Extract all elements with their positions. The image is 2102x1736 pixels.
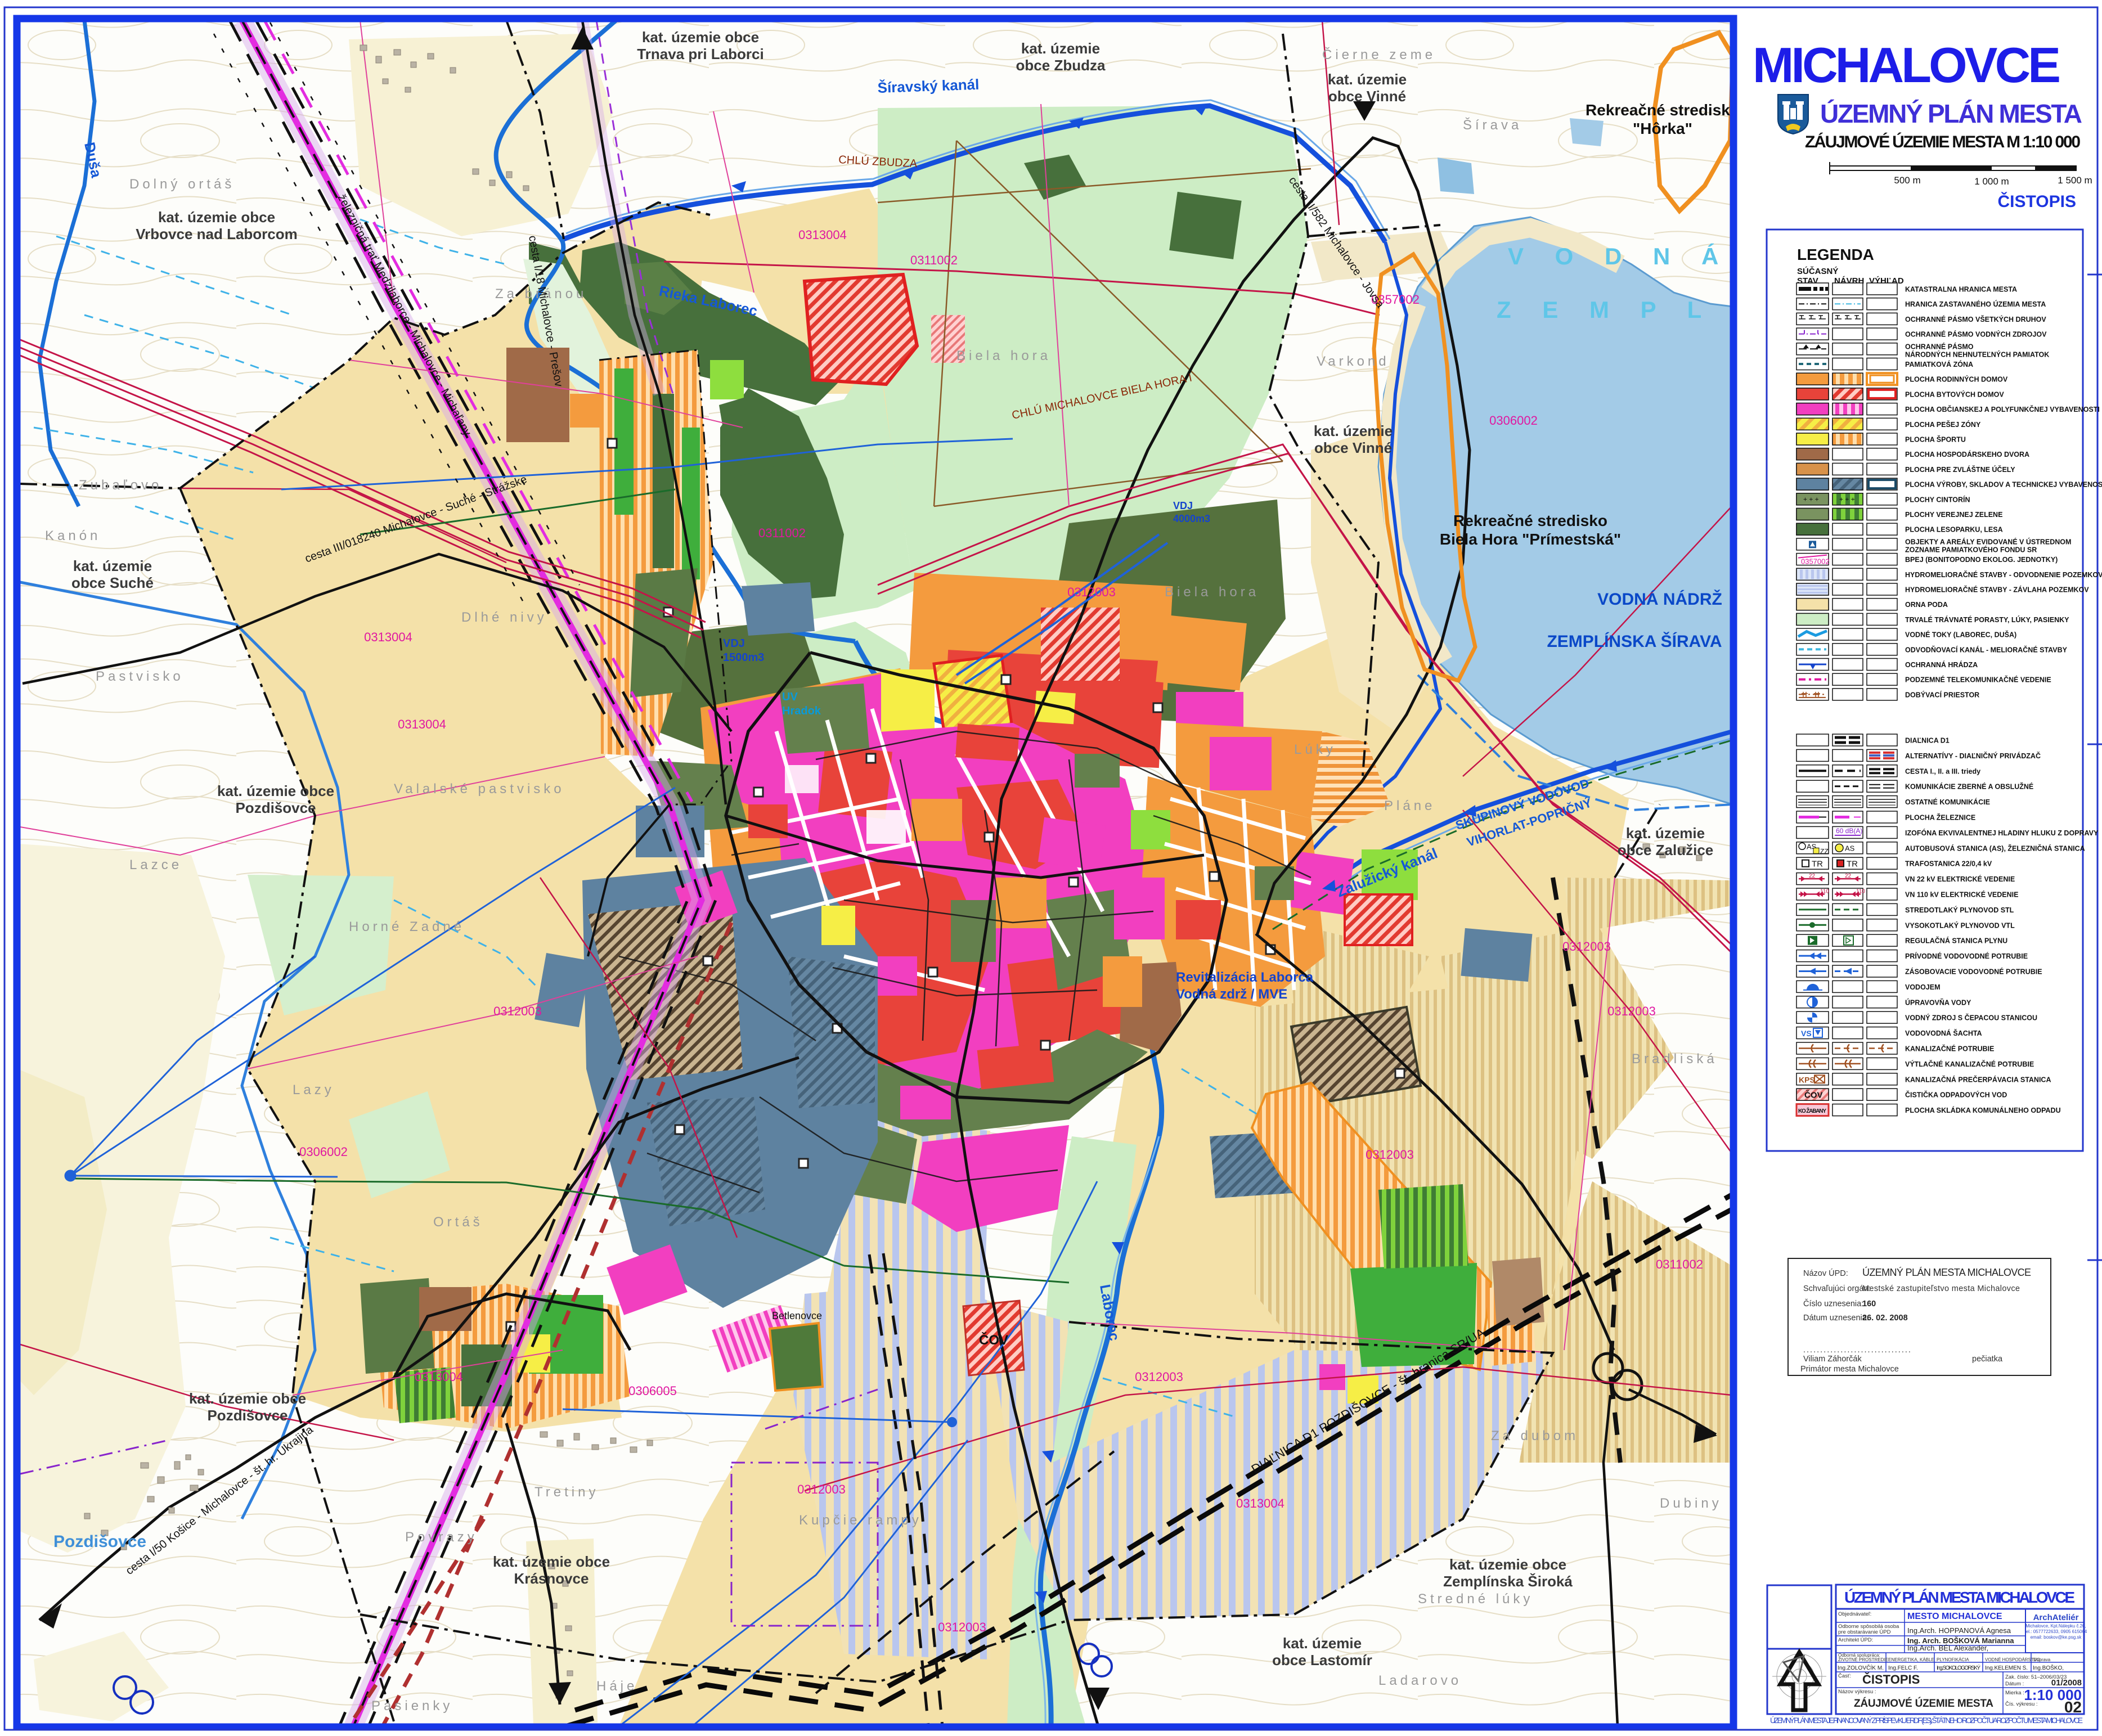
svg-text:VS: VS: [1801, 1029, 1812, 1038]
svg-text:tel.: 0577722633, 0905 615064: tel.: 0577722633, 0905 615064: [2025, 1629, 2087, 1634]
svg-text:0312003: 0312003: [1562, 939, 1611, 954]
svg-text:110: 110: [1856, 889, 1865, 895]
svg-text:Dátum uznesenia:: Dátum uznesenia:: [1803, 1314, 1869, 1323]
svg-text:Biela hora: Biela hora: [956, 348, 1051, 363]
svg-text:Šíravský kanál: Šíravský kanál: [877, 76, 980, 96]
svg-text:ÚPRAVOVŇA VODY: ÚPRAVOVŇA VODY: [1905, 998, 1971, 1006]
svg-text:0311002: 0311002: [1656, 1257, 1703, 1271]
svg-text:OCHRANNÉ PÁSMO: OCHRANNÉ PÁSMO: [1905, 342, 1974, 350]
svg-text:1500m3: 1500m3: [723, 651, 764, 664]
svg-text:KO ŽABANY: KO ŽABANY: [1798, 1107, 1826, 1114]
svg-text:Lazy: Lazy: [293, 1082, 335, 1098]
svg-text:obce Suché: obce Suché: [71, 574, 154, 591]
svg-text:Čierne zeme: Čierne zeme: [1322, 47, 1436, 62]
svg-text:VDJ: VDJ: [1173, 500, 1193, 511]
svg-text:500 m: 500 m: [1894, 175, 1920, 186]
svg-text:0313004: 0313004: [415, 1370, 463, 1384]
svg-text:VODOVODNÁ ŠACHTA: VODOVODNÁ ŠACHTA: [1905, 1029, 1982, 1037]
svg-text:ODVODŇOVACÍ KANÁL - MELIORAČN: ODVODŇOVACÍ KANÁL - MELIORAČNÉ STAVBY: [1905, 645, 2068, 654]
svg-text:kat. územie obce: kat. územie obce: [493, 1553, 610, 1570]
svg-text:Tretiny: Tretiny: [535, 1485, 599, 1500]
svg-text:kat. územie obce: kat. územie obce: [642, 29, 759, 46]
svg-text:26. 02. 2008: 26. 02. 2008: [1862, 1314, 1908, 1323]
svg-text:Kupčie rampy: Kupčie rampy: [799, 1513, 922, 1528]
svg-text:VN 22 kV ELEKTRICKÉ VEDENIE: VN 22 kV ELEKTRICKÉ VEDENIE: [1905, 875, 2015, 883]
svg-text:ČISTOPIS: ČISTOPIS: [1862, 1672, 1920, 1686]
svg-text:Časť:: Časť:: [1838, 1673, 1851, 1679]
svg-text:Dátum :: Dátum :: [2005, 1681, 2024, 1687]
svg-text:Ing.Arch. BÉL Alexander,: Ing.Arch. BÉL Alexander,: [1907, 1644, 1988, 1652]
svg-text:Ing.KELEMEN S.: Ing.KELEMEN S.: [1985, 1665, 2028, 1671]
svg-text:Vodná zdrž / MVE: Vodná zdrž / MVE: [1176, 987, 1287, 1002]
svg-text:Číslo uznesenia:: Číslo uznesenia:: [1803, 1299, 1863, 1308]
svg-text:pre obstarávanie ÚPD: pre obstarávanie ÚPD: [1838, 1629, 1891, 1635]
svg-text:HYDROMELIORAČNÉ STAVBY - ODVOD: HYDROMELIORAČNÉ STAVBY - ODVODNENIE POZE…: [1905, 570, 2102, 579]
svg-text:Pláne: Pláne: [1384, 798, 1435, 813]
svg-text:KATASTRALNA HRANICA MESTA: KATASTRALNA HRANICA MESTA: [1905, 286, 2017, 294]
svg-text:PLOCHA ŠPORTU: PLOCHA ŠPORTU: [1905, 435, 1966, 444]
svg-text:OSTATNÉ KOMUNIKÁCIE: OSTATNÉ KOMUNIKÁCIE: [1905, 798, 1990, 806]
svg-text:ÚZEMNÝ PLÁN MESTA: ÚZEMNÝ PLÁN MESTA: [1820, 99, 2082, 128]
svg-text:kat. územie obce: kat. územie obce: [158, 209, 275, 226]
svg-text:UV: UV: [782, 691, 798, 703]
svg-text:HYDROMELIORAČNÉ STAVBY - ZÁVLA: HYDROMELIORAČNÉ STAVBY - ZÁVLAHA POZEMKO…: [1905, 586, 2089, 594]
svg-text:Ladarovo: Ladarovo: [1378, 1673, 1462, 1688]
svg-text:KOMUNIKÁCIE ZBERNÉ A OBSLUŽNÉ: KOMUNIKÁCIE ZBERNÉ A OBSLUŽNÉ: [1905, 782, 2033, 791]
svg-text:Zemplínska Široká: Zemplínska Široká: [1443, 1573, 1573, 1590]
svg-text:Povrazy: Povrazy: [405, 1530, 478, 1545]
svg-text:AUTOBUSOVÁ STANICA (AS), ŽELEZ: AUTOBUSOVÁ STANICA (AS), ŽELEZNIČNÁ STAN…: [1905, 844, 2085, 852]
svg-text:Ing.SOKOLOGORSKÝ: Ing.SOKOLOGORSKÝ: [1937, 1664, 1980, 1671]
svg-text:ENERGETIKA, KÁBLE: ENERGETIKA, KÁBLE: [1888, 1657, 1934, 1662]
svg-text:ÚZEMNÝ PLÁN MESTA JE FINANCOVA: ÚZEMNÝ PLÁN MESTA JE FINANCOVANÝ Z PRÍSP…: [1770, 1716, 2083, 1725]
svg-text:kat. územie: kat. územie: [1328, 71, 1407, 88]
svg-text:PODZEMNÉ TELEKOMUNIKAČNÉ VEDEN: PODZEMNÉ TELEKOMUNIKAČNÉ VEDENIE: [1905, 676, 2051, 684]
svg-text:0311002: 0311002: [758, 526, 806, 540]
svg-text:KANALIZAČNÉ POTRUBIE: KANALIZAČNÉ POTRUBIE: [1905, 1045, 1994, 1053]
svg-text:Dolný ortáš: Dolný ortáš: [129, 177, 235, 192]
svg-text:+ + +: + + +: [1803, 495, 1819, 503]
svg-text:Názov ÚPD:: Názov ÚPD:: [1803, 1269, 1848, 1278]
svg-text:160: 160: [1862, 1299, 1876, 1308]
svg-text:0306002: 0306002: [299, 1145, 348, 1159]
svg-text:0357002: 0357002: [1801, 557, 1830, 566]
svg-text:VODOJEM: VODOJEM: [1905, 983, 1941, 991]
svg-text:VDJ: VDJ: [723, 637, 745, 650]
svg-text:LEGENDA: LEGENDA: [1797, 246, 1874, 263]
svg-text:V O D N Á: V O D N Á: [1508, 243, 1731, 269]
svg-text:PLOCHA BYTOVÝCH DOMOV: PLOCHA BYTOVÝCH DOMOV: [1905, 390, 2004, 398]
svg-text:BPEJ (BONITOPODNO EKOLOG. JEDN: BPEJ (BONITOPODNO EKOLOG. JEDNOTKY): [1905, 556, 2058, 564]
svg-text:OCHRANNÉ PÁSMO VŠETKÝCH DRUHOV: OCHRANNÉ PÁSMO VŠETKÝCH DRUHOV: [1905, 315, 2046, 323]
svg-text:PLOCHA LESOPARKU, LESA: PLOCHA LESOPARKU, LESA: [1905, 526, 2003, 534]
svg-text:0312003: 0312003: [1067, 585, 1116, 599]
svg-text:VODNÝ ZDROJ S ČEPACOU STANICOU: VODNÝ ZDROJ S ČEPACOU STANICOU: [1905, 1014, 2037, 1022]
svg-text:Ing.BOŠKO,: Ing.BOŠKO,: [2033, 1664, 2064, 1671]
svg-text:MESTO MICHALOVCE: MESTO MICHALOVCE: [1907, 1612, 2002, 1621]
svg-text:ÚZEMNÝ PLÁN MESTA MICHALOVCE: ÚZEMNÝ PLÁN MESTA MICHALOVCE: [1844, 1589, 2075, 1606]
svg-text:ZOZNAME PAMIATKOVÉHO FONDU SR: ZOZNAME PAMIATKOVÉHO FONDU SR: [1905, 545, 2037, 554]
svg-text:VODNÉ HOSPODÁRSTVO: VODNÉ HOSPODÁRSTVO: [1985, 1657, 2040, 1662]
svg-text:kat. územie: kat. územie: [1021, 40, 1100, 57]
svg-text:+ + +: + + +: [1839, 495, 1855, 503]
svg-text:ÚZEMNÝ PLÁN MESTA MICHALOVCE: ÚZEMNÝ PLÁN MESTA MICHALOVCE: [1862, 1266, 2031, 1278]
svg-text:0313004: 0313004: [398, 717, 446, 731]
svg-text:Ing.Arch. HOPPANOVÁ Agnesa: Ing.Arch. HOPPANOVÁ Agnesa: [1907, 1626, 2011, 1635]
svg-text:ČISTOPIS: ČISTOPIS: [1998, 192, 2076, 211]
svg-text:22: 22: [1845, 873, 1852, 879]
svg-text:Zubaľovo: Zubaľovo: [79, 478, 162, 493]
svg-text:0312003: 0312003: [1135, 1370, 1183, 1384]
svg-text:OCHRANNÉ PÁSMO VODNÝCH ZDROJOV: OCHRANNÉ PÁSMO VODNÝCH ZDROJOV: [1905, 330, 2047, 339]
svg-text:kat. územie: kat. územie: [1314, 422, 1393, 439]
svg-text:ZEMPLÍNSKA ŠÍRAVA: ZEMPLÍNSKA ŠÍRAVA: [1547, 632, 1722, 651]
svg-text:..............................: ................................: [1803, 1346, 1912, 1355]
svg-text:obce Zbudza: obce Zbudza: [1016, 57, 1106, 74]
svg-text:REGULAČNÁ STANICA PLYNU: REGULAČNÁ STANICA PLYNU: [1905, 937, 2007, 945]
svg-text:Krásnovce: Krásnovce: [514, 1570, 589, 1587]
svg-text:60 dB(A): 60 dB(A): [1836, 827, 1862, 835]
svg-text:Kanón: Kanón: [45, 528, 101, 543]
svg-text:obce Zalužice: obce Zalužice: [1618, 842, 1714, 858]
svg-text:Pozdišovce: Pozdišovce: [207, 1407, 288, 1424]
svg-text:PLOCHA OBČIANSKEJ A POLYFUNKČN: PLOCHA OBČIANSKEJ A POLYFUNKČNEJ VYBAVEN…: [1905, 405, 2100, 413]
svg-text:pečiatka: pečiatka: [1972, 1355, 2003, 1364]
svg-text:0312003: 0312003: [1366, 1148, 1414, 1162]
svg-text:email: boskov@ke.psg.sk: email: boskov@ke.psg.sk: [2031, 1635, 2082, 1640]
svg-text:VODNÉ TOKY (LABOREC, DUŠA): VODNÉ TOKY (LABOREC, DUŠA): [1905, 631, 2016, 639]
svg-text:Rekreačné stredisko: Rekreačné stredisko: [1453, 512, 1607, 529]
svg-text:Ing.FELC F.: Ing.FELC F.: [1888, 1665, 1918, 1671]
svg-text:Michalovce, Kpt.Nálepku č.20,: Michalovce, Kpt.Nálepku č.20,: [2025, 1623, 2086, 1629]
svg-text:obce Vinné: obce Vinné: [1328, 88, 1406, 105]
svg-text:0306005: 0306005: [628, 1384, 677, 1398]
svg-text:PLOCHA PEŠEJ ZÓNY: PLOCHA PEŠEJ ZÓNY: [1905, 420, 1981, 429]
svg-text:Ortáš: Ortáš: [433, 1215, 483, 1230]
svg-text:DIAĽNICA D1: DIAĽNICA D1: [1905, 737, 1950, 745]
svg-text:Rekreačné stredisko: Rekreačné stredisko: [1586, 101, 1740, 119]
svg-text:VÝTLAČNÉ KANALIZAČNÉ POTRUBIE: VÝTLAČNÉ KANALIZAČNÉ POTRUBIE: [1905, 1060, 2034, 1068]
svg-text:VODNÁ NÁDRŽ: VODNÁ NÁDRŽ: [1597, 590, 1722, 609]
svg-text:0313004: 0313004: [798, 228, 847, 242]
svg-text:PAMIATKOVÁ ZÓNA: PAMIATKOVÁ ZÓNA: [1905, 360, 1973, 368]
svg-text:22: 22: [1809, 873, 1816, 879]
svg-text:Názov výkresu :: Názov výkresu :: [1838, 1689, 1876, 1695]
svg-text:VN 110 kV ELEKTRICKÉ VEDENIE: VN 110 kV ELEKTRICKÉ VEDENIE: [1905, 891, 2018, 899]
svg-text:TR: TR: [1847, 860, 1858, 869]
svg-text:0312003: 0312003: [493, 1004, 542, 1018]
svg-text:1 500 m: 1 500 m: [2058, 175, 2092, 186]
svg-text:Stredné lúky: Stredné lúky: [1418, 1591, 1533, 1607]
svg-text:NÁRODNÝCH NEHNUTEĽNÝCH PAMIATO: NÁRODNÝCH NEHNUTEĽNÝCH PAMIATOK: [1905, 350, 2049, 358]
svg-text:TR: TR: [1812, 860, 1823, 869]
svg-text:KPS: KPS: [1799, 1075, 1815, 1084]
svg-text:PLOCHA ŽELEZNICE: PLOCHA ŽELEZNICE: [1905, 813, 1975, 822]
svg-text:0313004: 0313004: [1236, 1496, 1284, 1510]
svg-text:DOBÝVACÍ PRIESTOR: DOBÝVACÍ PRIESTOR: [1905, 690, 1979, 699]
svg-text:ZÁUJMOVÉ ÚZEMIE MESTA: ZÁUJMOVÉ ÚZEMIE MESTA: [1854, 1697, 1993, 1710]
svg-text:Primátor mesta Michalovce: Primátor mesta Michalovce: [1800, 1365, 1899, 1374]
svg-text:Architekt ÚPD:: Architekt ÚPD:: [1838, 1637, 1873, 1643]
svg-text:PLOCHA VÝROBY, SKLADOV A TECHN: PLOCHA VÝROBY, SKLADOV A TECHNICKEJ VYBA…: [1905, 480, 2102, 489]
svg-text:Doprava: Doprava: [2033, 1657, 2051, 1662]
svg-text:ČOV: ČOV: [979, 1332, 1008, 1348]
svg-text:VYSOKOTLAKÝ PLYNOVOD VTL: VYSOKOTLAKÝ PLYNOVOD VTL: [1905, 921, 2015, 929]
svg-text:PLOCHY VEREJNEJ ZELENE: PLOCHY VEREJNEJ ZELENE: [1905, 511, 2002, 519]
svg-text:TRVALÉ TRÁVNATÉ PORASTY, LÚKY,: TRVALÉ TRÁVNATÉ PORASTY, LÚKY, PASIENKY: [1905, 615, 2069, 624]
svg-text:0312003: 0312003: [1607, 1004, 1656, 1018]
svg-text:kat. územie obce: kat. územie obce: [189, 1390, 306, 1407]
svg-text:Pasienky: Pasienky: [371, 1698, 453, 1713]
svg-text:0306002: 0306002: [1489, 413, 1538, 428]
svg-text:PLYNOFIKÁCIA: PLYNOFIKÁCIA: [1937, 1657, 1969, 1662]
svg-text:SÚČASNÝ: SÚČASNÝ: [1797, 266, 1838, 276]
svg-text:Z E M P L Í N: Z E M P L Í N: [1497, 296, 1800, 323]
svg-text:Betlenovce: Betlenovce: [772, 1310, 822, 1321]
svg-text:Dlhé nivy: Dlhé nivy: [461, 610, 547, 625]
svg-text:Biela hora: Biela hora: [1165, 584, 1259, 600]
svg-text:1 000 m: 1 000 m: [1974, 176, 2009, 187]
svg-text:Za dubom: Za dubom: [1491, 1428, 1579, 1443]
svg-text:IZOFÓNA EKVIVALENTNEJ HLADINY: IZOFÓNA EKVIVALENTNEJ HLADINY HLUKU Z DO…: [1905, 829, 2099, 837]
svg-text:Bradliská: Bradliská: [1632, 1051, 1718, 1067]
svg-text:PLOCHA RODINNÝCH DOMOV: PLOCHA RODINNÝCH DOMOV: [1905, 375, 2008, 384]
svg-text:"Hôrka": "Hôrka": [1633, 120, 1692, 137]
svg-text:ČISTIČKA ODPADOVÝCH VOD: ČISTIČKA ODPADOVÝCH VOD: [1905, 1091, 2007, 1099]
svg-text:ZÁSOBOVACIE VODOVODNÉ POTRUBIE: ZÁSOBOVACIE VODOVODNÉ POTRUBIE: [1905, 968, 2042, 976]
svg-text:Trnava pri Laborci: Trnava pri Laborci: [637, 46, 763, 62]
svg-text:Mestské zastupiteľstvo mesta M: Mestské zastupiteľstvo mesta Michalovce: [1862, 1284, 2020, 1293]
svg-text:PLOCHY CINTORÍN: PLOCHY CINTORÍN: [1905, 495, 1970, 503]
svg-text:ORNA PODA: ORNA PODA: [1905, 601, 1948, 609]
svg-text:Mierka :: Mierka :: [2005, 1690, 2024, 1696]
svg-text:PLOCHA SKLÁDKA KOMUNÁLNEHO ODP: PLOCHA SKLÁDKA KOMUNÁLNEHO ODPADU: [1905, 1106, 2061, 1114]
svg-text:ALTERNATÍVY - DIAĽNIČNÝ PRIVÁD: ALTERNATÍVY - DIAĽNIČNÝ PRIVÁDZAČ: [1905, 752, 2041, 760]
svg-text:obce Vinné: obce Vinné: [1314, 439, 1392, 456]
svg-text:STREDOTLAKÝ PLYNOVOD STL: STREDOTLAKÝ PLYNOVOD STL: [1905, 906, 2014, 914]
svg-text:TRAFOSTANICA 22/0,4 kV: TRAFOSTANICA 22/0,4 kV: [1905, 860, 1992, 868]
svg-text:kat. územie obce: kat. územie obce: [1449, 1556, 1566, 1573]
svg-text:110: 110: [1820, 889, 1829, 895]
svg-text:obce Lastomír: obce Lastomír: [1272, 1652, 1372, 1668]
svg-text:MICHALOVCE: MICHALOVCE: [1753, 37, 2061, 93]
svg-text:0312003: 0312003: [938, 1620, 986, 1634]
svg-text:AS: AS: [1845, 844, 1855, 852]
svg-text:OCHRANNÁ HRÁDZA: OCHRANNÁ HRÁDZA: [1905, 660, 1978, 669]
svg-text:Revitalizácia Laborca: Revitalizácia Laborca: [1176, 970, 1314, 985]
svg-text:KANALIZAČNÁ PREČERPÁVACIA STAN: KANALIZAČNÁ PREČERPÁVACIA STANICA: [1905, 1075, 2051, 1083]
svg-text:ČOV: ČOV: [1804, 1090, 1823, 1100]
svg-text:0311002: 0311002: [910, 253, 958, 267]
svg-text:Ing.ZOLOVČÍK M.: Ing.ZOLOVČÍK M.: [1838, 1664, 1884, 1671]
svg-text:Valalské pastvisko: Valalské pastvisko: [394, 781, 565, 797]
svg-text:kat. územie obce: kat. územie obce: [217, 782, 334, 799]
svg-text:PLOCHA PRE ZVLÁŠTNE ÚČELY: PLOCHA PRE ZVLÁŠTNE ÚČELY: [1905, 465, 2015, 474]
svg-text:0313004: 0313004: [364, 630, 412, 644]
svg-text:Šírava: Šírava: [1463, 117, 1522, 133]
svg-text:Viliam Záhorčák: Viliam Záhorčák: [1803, 1355, 1862, 1364]
svg-text:Hradok: Hradok: [782, 705, 821, 717]
svg-text:Pastvisko: Pastvisko: [96, 669, 184, 684]
svg-text:ArchAteliér: ArchAteliér: [2033, 1613, 2079, 1622]
svg-text:kat. územie: kat. územie: [1626, 825, 1705, 842]
svg-text:Horné Zadné: Horné Zadné: [349, 919, 465, 934]
svg-text:kat. územie: kat. územie: [73, 557, 152, 574]
svg-text:Vrbovce nad Laborcom: Vrbovce nad Laborcom: [136, 226, 298, 242]
svg-text:0312003: 0312003: [797, 1482, 846, 1496]
svg-text:Biela Hora "Prímestská": Biela Hora "Prímestská": [1440, 530, 1621, 548]
svg-text:Varkond: Varkond: [1317, 354, 1390, 369]
svg-text:HRANICA ZASTAVANÉHO ÚZEMIA MES: HRANICA ZASTAVANÉHO ÚZEMIA MESTA: [1905, 300, 2046, 308]
svg-text:02: 02: [2064, 1698, 2082, 1716]
svg-text:Háje: Háje: [596, 1679, 637, 1694]
svg-text:Schvaľujúci orgán:: Schvaľujúci orgán:: [1803, 1284, 1871, 1293]
svg-text:PRÍVODNÉ VODOVODNÉ POTRUBIE: PRÍVODNÉ VODOVODNÉ POTRUBIE: [1905, 952, 2028, 960]
svg-text:ZÁUJMOVÉ ÚZEMIE MESTA M 1:10 0: ZÁUJMOVÉ ÚZEMIE MESTA M 1:10 000: [1805, 132, 2081, 151]
svg-text:ZZ: ZZ: [1820, 847, 1829, 855]
svg-text:kat. územie: kat. územie: [1283, 1635, 1362, 1652]
svg-text:Dubiny: Dubiny: [1660, 1496, 1722, 1511]
svg-text:4000m3: 4000m3: [1173, 513, 1210, 524]
svg-text:OBJEKTY A AREÁLY EVIDOVANÉ V Ú: OBJEKTY A AREÁLY EVIDOVANÉ V ÚSTREDNOM: [1905, 537, 2071, 546]
svg-text:Objednávateľ:: Objednávateľ:: [1838, 1611, 1871, 1617]
svg-text:Pozdišovce: Pozdišovce: [53, 1532, 146, 1551]
svg-text:Lazce: Lazce: [129, 857, 182, 873]
svg-text:PLOCHA HOSPODÁRSKEHO DVORA: PLOCHA HOSPODÁRSKEHO DVORA: [1905, 450, 2029, 458]
svg-text:Lúky: Lúky: [1294, 742, 1336, 757]
svg-text:ŽIVOTNÉ PROSTREDIE: ŽIVOTNÉ PROSTREDIE: [1838, 1657, 1888, 1662]
svg-text:Pozdišovce: Pozdišovce: [235, 799, 316, 816]
svg-text:CESTA I., II. a III. triedy: CESTA I., II. a III. triedy: [1905, 767, 1980, 775]
